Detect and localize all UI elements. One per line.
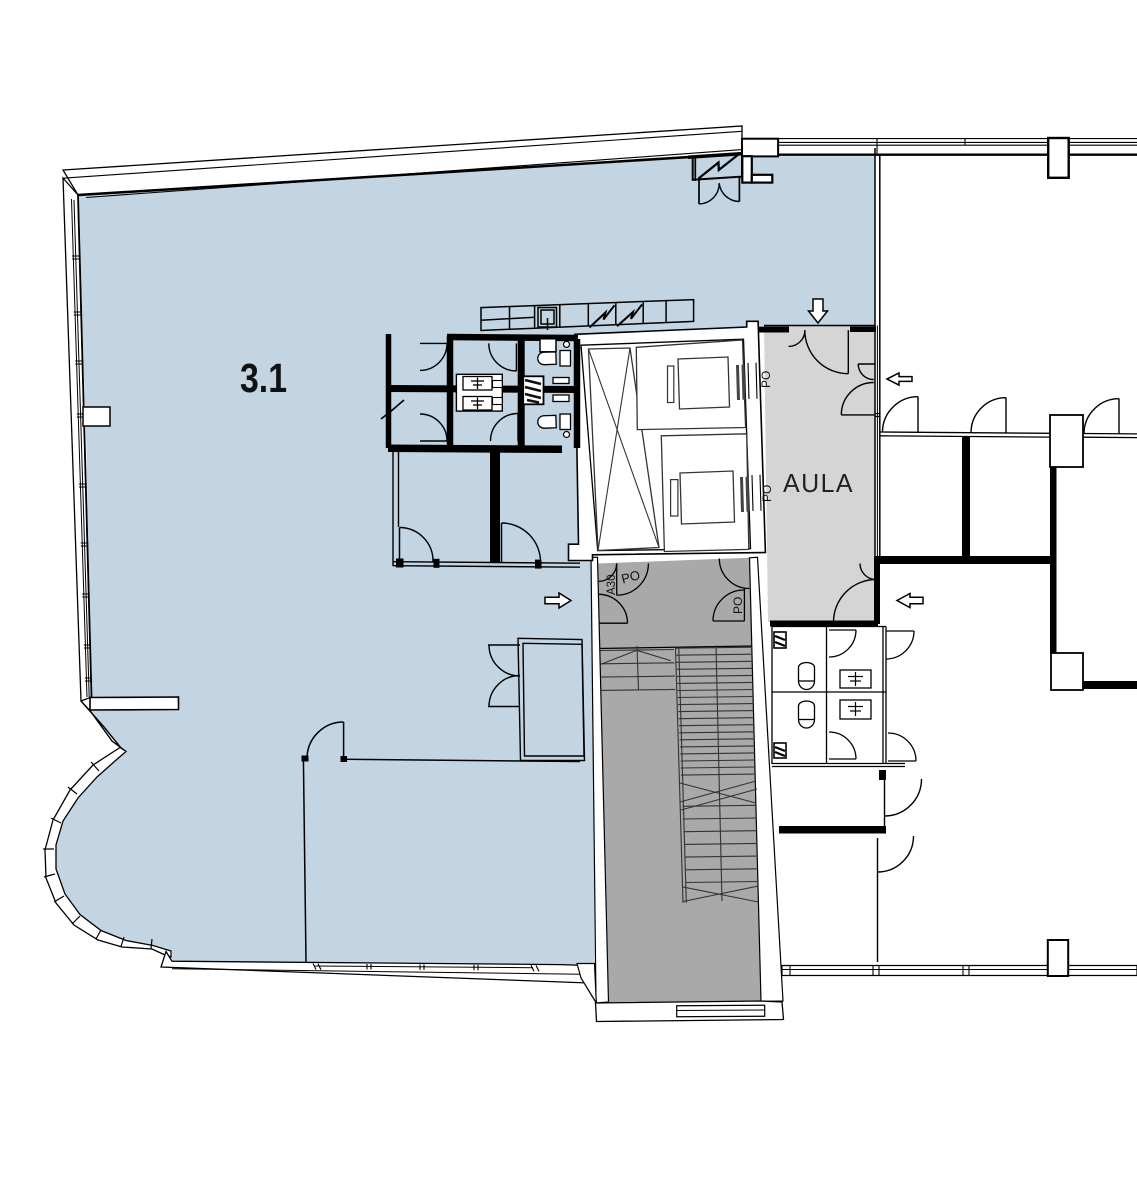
svg-text:PO: PO [760, 485, 774, 502]
svg-text:PO: PO [759, 371, 773, 388]
svg-text:A30: A30 [606, 575, 618, 595]
svg-text:PO: PO [731, 597, 745, 614]
svg-text:AULA: AULA [783, 468, 854, 498]
svg-text:3.1: 3.1 [240, 355, 287, 401]
